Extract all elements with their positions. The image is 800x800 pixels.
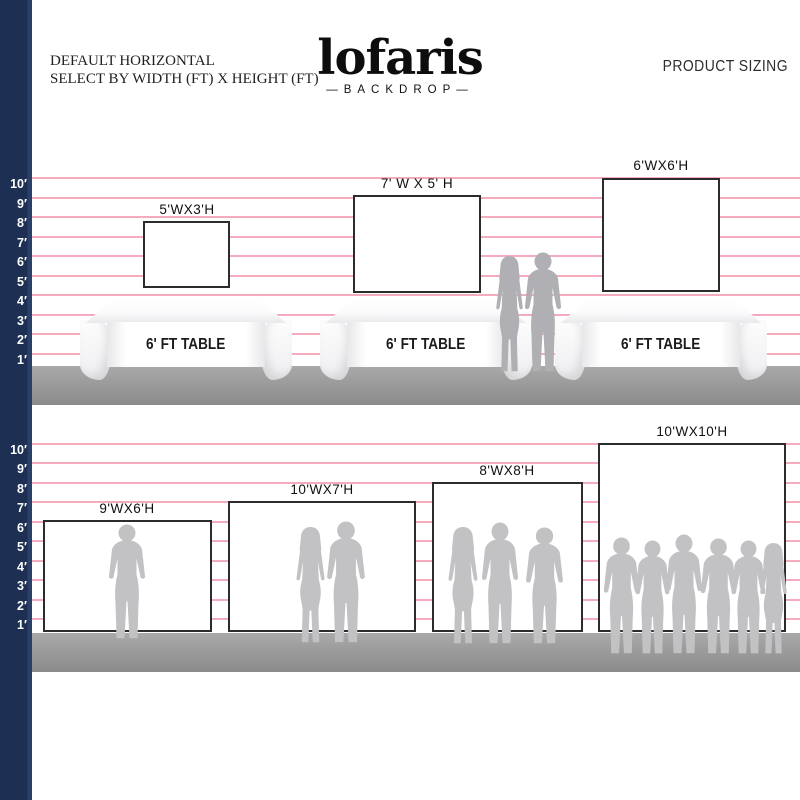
backdrop-size-label: 10'WX7'H [237, 482, 407, 498]
tablecloth-front: 6' FT TABLE [582, 322, 740, 367]
brand-logo: lofaris —BACKDROP— [290, 34, 510, 96]
product-sizing-diagram: DEFAULT HORIZONTAL SELECT BY WIDTH (FT) … [0, 0, 800, 800]
banquet-table: 6' FT TABLE [86, 299, 286, 385]
male-silhouette [322, 521, 370, 645]
backdrop-size-label: 9'WX6'H [42, 501, 212, 517]
backdrop-panel [143, 221, 230, 288]
tablecloth-front: 6' FT TABLE [107, 322, 265, 367]
female-silhouette [445, 527, 481, 646]
ruler-label: 10′ [0, 176, 27, 192]
header-note-line2: SELECT BY WIDTH (FT) X HEIGHT (FT) [50, 70, 319, 88]
backdrop-size-label: 10'WX10'H [607, 424, 777, 440]
ruler-label: 4′ [0, 293, 27, 309]
backdrop-size-label: 8'WX8'H [422, 463, 592, 479]
table-label: 6' FT TABLE [146, 336, 225, 354]
backdrop-panel [353, 195, 481, 293]
female-silhouette [757, 543, 790, 656]
backdrop-panel [602, 178, 720, 292]
ruler-label: 3′ [0, 313, 27, 329]
tablecloth-front: 6' FT TABLE [347, 322, 505, 367]
header-note: DEFAULT HORIZONTAL SELECT BY WIDTH (FT) … [50, 52, 319, 88]
ruler-label: 7′ [0, 500, 27, 516]
ruler-label: 2′ [0, 598, 27, 614]
ruler-label: 3′ [0, 578, 27, 594]
ruler-label: 2′ [0, 332, 27, 348]
ruler-label: 6′ [0, 520, 27, 536]
table-surface [561, 299, 761, 323]
table-label: 6' FT TABLE [621, 336, 700, 354]
brand-name: lofaris [290, 34, 510, 82]
male-silhouette [521, 527, 568, 646]
ruler-label: 10′ [0, 442, 27, 458]
table-surface [86, 299, 286, 323]
header-note-line1: DEFAULT HORIZONTAL [50, 52, 319, 70]
backdrop-size-label: 5'WX3'H [102, 202, 272, 218]
backdrop-size-label: 6'WX6'H [576, 158, 746, 174]
table-label: 6' FT TABLE [386, 336, 465, 354]
ruler-label: 4′ [0, 559, 27, 575]
ruler-bar [0, 0, 32, 800]
male-silhouette [104, 524, 150, 641]
ruler-label: 9′ [0, 196, 27, 212]
ruler-label: 6′ [0, 254, 27, 270]
page-title: PRODUCT SIZING [662, 58, 788, 76]
male-silhouette [520, 252, 566, 374]
ruler-label: 9′ [0, 461, 27, 477]
ruler-label: 5′ [0, 274, 27, 290]
backdrop-size-label: 7' W X 5' H [332, 176, 502, 192]
male-silhouette [477, 522, 523, 646]
foot-line [32, 294, 800, 296]
ruler-label: 7′ [0, 235, 27, 251]
ruler-label: 1′ [0, 352, 27, 368]
ruler-label: 8′ [0, 215, 27, 231]
ruler-label: 1′ [0, 617, 27, 633]
ruler-label: 8′ [0, 481, 27, 497]
banquet-table: 6' FT TABLE [561, 299, 761, 385]
ruler-label: 5′ [0, 539, 27, 555]
